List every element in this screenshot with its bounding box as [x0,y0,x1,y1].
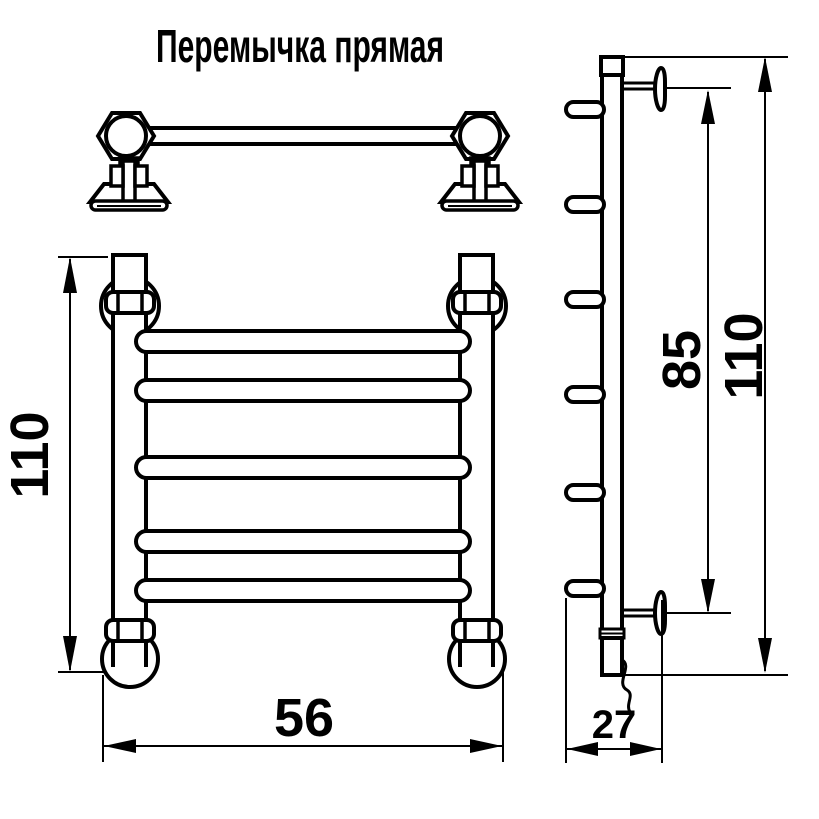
rung-stubs [566,102,604,596]
side-view: 85 110 27 [566,57,788,763]
upper-wall-bracket [622,68,665,110]
bracket-span-label: 85 [652,330,712,390]
crossbar-tube [150,128,456,144]
lower-wall-bracket [622,592,665,634]
top-view [90,113,519,210]
depth-label: 27 [592,703,637,747]
depth-dimension: 27 [566,598,662,763]
side-height-label: 110 [714,312,774,399]
right-hex-fitting [452,113,508,159]
rungs [136,331,470,601]
bottom-union-fitting [600,629,630,712]
drawing-page: Перемычка прямая [0,0,819,819]
right-wall-mount [441,158,519,210]
technical-drawing: Перемычка прямая [0,0,819,819]
side-height-dimension: 110 [714,57,774,673]
drawing-title: Перемычка прямая [156,20,444,72]
left-hex-fitting [98,113,154,159]
front-width-dimension: 56 [103,668,503,762]
right-bottom-nut [453,620,501,641]
pipe-through-balls [113,640,493,667]
front-width-label: 56 [274,688,334,748]
left-bottom-nut [106,620,154,641]
right-top-nut [453,292,501,313]
front-view: 110 56 [0,255,506,762]
front-height-dimension: 110 [0,257,108,672]
bracket-span-dimension: 85 [652,90,715,613]
pipe-top-cap [601,57,623,75]
left-top-nut [106,292,154,313]
front-height-label: 110 [0,411,60,498]
left-wall-mount [90,158,168,210]
